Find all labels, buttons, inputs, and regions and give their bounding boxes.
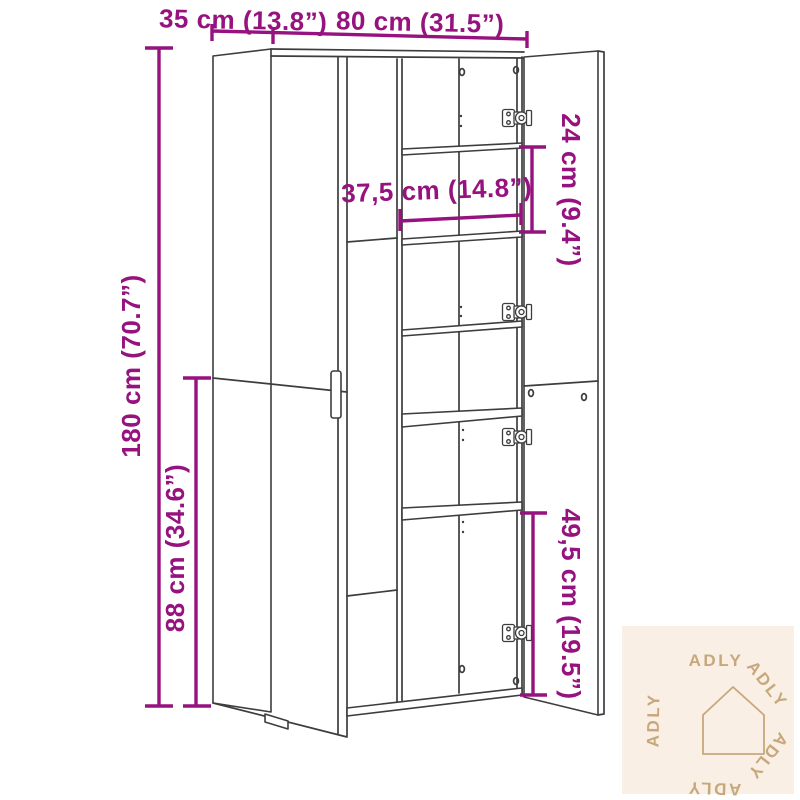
lower-door-dimension-label: 88 cm (34.6”) xyxy=(160,464,190,632)
shelf xyxy=(402,231,522,245)
inner-strip-dividers xyxy=(347,238,397,596)
brand-text: ADLY xyxy=(644,692,664,747)
brand-text: ADLY xyxy=(689,651,744,670)
shelf xyxy=(402,321,522,336)
shelf xyxy=(402,502,522,520)
watermark: ADLY ADLY ADLY ADLY ADLY xyxy=(622,626,794,799)
hinge-icon xyxy=(503,625,532,642)
lower-compartment-dimension-label: 49,5 cm (19.5”) xyxy=(556,508,586,699)
cabinet-top-edge xyxy=(271,49,524,58)
shelf xyxy=(402,143,522,155)
cabinet-dimension-diagram: 35 cm (13.8”) 80 cm (31.5”) 180 cm (70.7… xyxy=(0,0,800,800)
height-dimension-label: 180 cm (70.7”) xyxy=(116,274,146,457)
cabinet-floor xyxy=(347,688,522,716)
open-door-thickness-edge xyxy=(598,51,604,715)
hinge-icon xyxy=(503,304,532,321)
upper-compartment-dimension-label: 24 cm (9.4”) xyxy=(556,113,586,266)
dimension-annotations: 35 cm (13.8”) 80 cm (31.5”) 180 cm (70.7… xyxy=(116,3,586,706)
door-handle xyxy=(331,371,341,418)
width-dimension-label: 80 cm (31.5”) xyxy=(336,5,505,39)
brand-text: ADLY xyxy=(686,778,741,799)
depth-dimension-label: 35 cm (13.8”) xyxy=(159,3,328,37)
shelf-width-dimension-label: 37,5 cm (14.8”) xyxy=(341,172,533,209)
cabinet-vertical-lines xyxy=(338,57,522,736)
shelf xyxy=(402,408,522,427)
hinge-icon xyxy=(503,429,532,446)
shelf-width-dimension-line xyxy=(400,203,521,231)
hinge-icon xyxy=(503,110,532,127)
cabinet-drawing xyxy=(213,49,604,737)
cabinet-foot xyxy=(265,714,288,729)
